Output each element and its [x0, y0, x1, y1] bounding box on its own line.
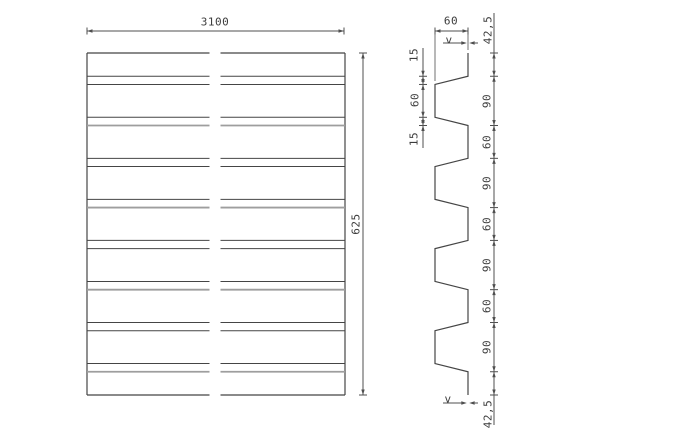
profile-outline: [435, 53, 468, 395]
right-dim-label-42-5-bottom: 42,5: [483, 400, 494, 429]
right-dim-label-90-4: 90: [482, 340, 493, 354]
thickness-dim-label-bottom: v: [444, 394, 451, 405]
right-dim-label-90-1: 90: [482, 94, 493, 108]
right-dim-label-60-3: 60: [482, 299, 493, 313]
right-dim-label-60-2: 60: [482, 217, 493, 231]
plan-length-dim-label: 3100: [201, 17, 230, 28]
right-dim-label-60-1: 60: [482, 135, 493, 149]
right-dim-label-42-5-top: 42,5: [483, 16, 494, 45]
left-dim-label-60: 60: [410, 93, 421, 107]
right-dim-label-90-2: 90: [482, 176, 493, 190]
left-dim-label-15-top: 15: [409, 48, 420, 62]
right-dim-label-90-3: 90: [482, 258, 493, 272]
plan-width-dim-label: 625: [351, 213, 362, 234]
plan-view-lines: [87, 53, 345, 395]
profile-depth-dim-label: 60: [444, 16, 458, 27]
thickness-dim-label-top: v: [445, 35, 452, 46]
left-dim-label-15-bottom: 15: [409, 132, 420, 146]
drawing-sheet: 3100 625 60 v 42,5 15 60 15 90 60 90 60 …: [0, 0, 700, 432]
